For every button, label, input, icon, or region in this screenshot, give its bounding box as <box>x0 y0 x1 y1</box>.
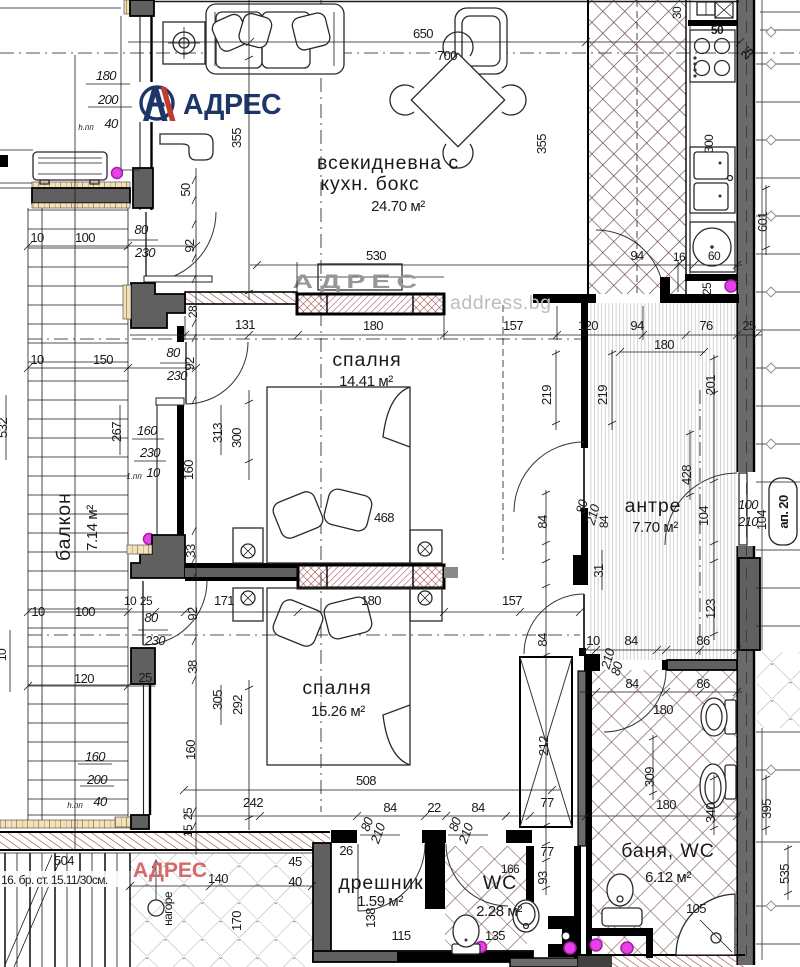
svg-text:7.14 м²: 7.14 м² <box>84 505 101 551</box>
svg-text:нагоре: нагоре <box>161 891 175 926</box>
svg-text:355: 355 <box>229 128 244 148</box>
svg-text:300: 300 <box>229 428 244 448</box>
svg-text:25: 25 <box>742 318 756 333</box>
svg-text:219: 219 <box>539 385 554 405</box>
svg-text:340: 340 <box>703 803 718 823</box>
svg-text:h.пп: h.пп <box>67 801 83 810</box>
svg-text:h.пп: h.пп <box>78 123 94 132</box>
svg-text:ап. 20: ап. 20 <box>776 495 791 529</box>
svg-text:201: 201 <box>703 375 718 395</box>
svg-text:16: 16 <box>673 250 686 264</box>
svg-text:спалня: спалня <box>302 677 371 699</box>
svg-text:45: 45 <box>288 854 302 869</box>
svg-text:160: 160 <box>183 740 198 760</box>
svg-text:15: 15 <box>181 824 195 837</box>
svg-text:25: 25 <box>181 807 195 820</box>
svg-text:267: 267 <box>109 422 124 442</box>
svg-text:10: 10 <box>30 352 44 367</box>
svg-text:700: 700 <box>437 48 457 63</box>
svg-text:16. бр. ст. 15.11/30см.: 16. бр. ст. 15.11/30см. <box>1 873 108 887</box>
svg-text:171: 171 <box>214 593 234 608</box>
svg-text:104: 104 <box>696 506 711 526</box>
svg-text:530: 530 <box>366 248 386 263</box>
svg-text:14.41 м²: 14.41 м² <box>339 373 393 390</box>
svg-text:170: 170 <box>229 911 244 931</box>
svg-text:180: 180 <box>363 318 383 333</box>
svg-text:150: 150 <box>93 352 113 367</box>
svg-text:650: 650 <box>413 26 433 41</box>
svg-text:84: 84 <box>597 515 611 528</box>
svg-text:230: 230 <box>134 245 156 260</box>
svg-text:38: 38 <box>185 660 200 674</box>
svg-text:180: 180 <box>96 68 117 83</box>
svg-text:10: 10 <box>0 648 9 661</box>
svg-text:кухн. бокс: кухн. бокс <box>320 173 419 195</box>
svg-text:105: 105 <box>686 901 706 916</box>
svg-text:10: 10 <box>31 604 45 619</box>
svg-text:230: 230 <box>144 633 166 648</box>
svg-text:180: 180 <box>653 702 673 717</box>
svg-text:31: 31 <box>591 564 606 578</box>
svg-text:120: 120 <box>74 671 94 686</box>
svg-text:2.28 м²: 2.28 м² <box>476 903 522 920</box>
svg-text:6.12 м²: 6.12 м² <box>645 869 691 886</box>
svg-text:80: 80 <box>166 345 181 360</box>
svg-text:93: 93 <box>535 871 550 885</box>
svg-text:10: 10 <box>146 465 161 480</box>
svg-text:спалня: спалня <box>332 349 401 371</box>
svg-text:балкон: балкон <box>53 492 75 561</box>
svg-text:313: 313 <box>210 423 225 443</box>
svg-text:532: 532 <box>0 418 10 438</box>
svg-text:24.70 м²: 24.70 м² <box>371 198 425 215</box>
svg-text:80: 80 <box>144 610 159 625</box>
svg-text:94: 94 <box>630 318 644 333</box>
svg-text:84: 84 <box>535 633 550 647</box>
svg-text:84: 84 <box>535 515 550 529</box>
svg-text:33: 33 <box>183 544 198 558</box>
svg-text:157: 157 <box>503 318 523 333</box>
svg-text:40: 40 <box>93 794 108 809</box>
svg-text:160: 160 <box>181 460 196 480</box>
svg-text:26: 26 <box>339 843 353 858</box>
svg-text:428: 428 <box>679 465 694 485</box>
svg-text:140: 140 <box>208 871 228 886</box>
svg-text:15.26 м²: 15.26 м² <box>311 703 365 720</box>
svg-text:25: 25 <box>138 670 152 685</box>
svg-text:86: 86 <box>696 676 710 691</box>
svg-text:123: 123 <box>703 599 718 619</box>
svg-text:10: 10 <box>586 633 600 648</box>
svg-text:30: 30 <box>670 6 684 19</box>
svg-text:230: 230 <box>139 445 161 460</box>
svg-text:84: 84 <box>625 676 639 691</box>
svg-text:180: 180 <box>361 593 381 608</box>
svg-text:10: 10 <box>124 594 137 608</box>
svg-text:84: 84 <box>471 800 485 815</box>
svg-text:160: 160 <box>85 749 106 764</box>
svg-text:305: 305 <box>210 690 225 710</box>
svg-text:160: 160 <box>137 423 158 438</box>
svg-text:120: 120 <box>578 318 598 333</box>
svg-text:антре: антре <box>625 495 682 517</box>
svg-text:395: 395 <box>759 799 774 819</box>
svg-text:115: 115 <box>392 928 411 943</box>
svg-text:40: 40 <box>288 874 302 889</box>
svg-text:25: 25 <box>700 282 714 295</box>
svg-text:100: 100 <box>75 604 95 619</box>
svg-text:АДРЕС: АДРЕС <box>183 89 281 121</box>
svg-text:100: 100 <box>738 497 759 512</box>
svg-text:92: 92 <box>182 357 197 371</box>
svg-text:157: 157 <box>502 593 522 608</box>
svg-text:77: 77 <box>540 844 554 859</box>
svg-text:242: 242 <box>243 795 263 810</box>
svg-text:10: 10 <box>30 230 44 245</box>
svg-text:7.70 м²: 7.70 м² <box>632 519 678 536</box>
svg-text:212: 212 <box>536 736 551 756</box>
svg-text:1.пп: 1.пп <box>126 472 142 481</box>
svg-text:300: 300 <box>702 134 716 153</box>
svg-text:138: 138 <box>363 908 378 928</box>
svg-text:80: 80 <box>134 222 149 237</box>
svg-text:94: 94 <box>630 248 644 263</box>
svg-text:180: 180 <box>654 337 674 352</box>
svg-text:25: 25 <box>140 594 153 608</box>
svg-text:135: 135 <box>485 928 505 943</box>
svg-text:468: 468 <box>374 510 394 525</box>
svg-text:92: 92 <box>185 607 200 621</box>
svg-text:дрешник: дрешник <box>338 872 423 894</box>
svg-text:355: 355 <box>534 134 549 154</box>
svg-text:АДРЕС: АДРЕС <box>133 859 207 882</box>
svg-text:200: 200 <box>97 92 119 107</box>
svg-text:1.59 м²: 1.59 м² <box>357 893 403 910</box>
svg-text:100: 100 <box>75 230 95 245</box>
svg-text:АДРЕС: АДРЕС <box>293 272 424 293</box>
svg-text:22: 22 <box>427 800 441 815</box>
svg-text:86: 86 <box>696 633 710 648</box>
svg-text:всекидневна с: всекидневна с <box>317 152 459 174</box>
svg-text:50: 50 <box>178 183 193 197</box>
svg-text:77: 77 <box>540 795 554 810</box>
svg-text:219: 219 <box>595 385 610 405</box>
svg-text:address.bg: address.bg <box>450 292 551 314</box>
svg-text:84: 84 <box>383 800 397 815</box>
svg-text:50: 50 <box>711 23 724 37</box>
svg-text:292: 292 <box>230 695 245 715</box>
svg-text:92: 92 <box>182 239 197 253</box>
svg-text:84: 84 <box>624 633 638 648</box>
svg-text:180: 180 <box>656 797 676 812</box>
svg-text:508: 508 <box>356 773 376 788</box>
svg-text:40: 40 <box>104 116 119 131</box>
svg-text:60: 60 <box>708 249 721 263</box>
svg-text:535: 535 <box>777 864 792 884</box>
svg-text:200: 200 <box>86 772 108 787</box>
svg-text:309: 309 <box>642 767 657 787</box>
svg-text:166: 166 <box>501 862 520 876</box>
svg-text:28: 28 <box>186 305 200 318</box>
svg-text:131: 131 <box>235 317 255 332</box>
svg-text:504: 504 <box>54 853 74 868</box>
svg-text:76: 76 <box>699 318 713 333</box>
svg-text:баня, WC: баня, WC <box>621 840 714 862</box>
